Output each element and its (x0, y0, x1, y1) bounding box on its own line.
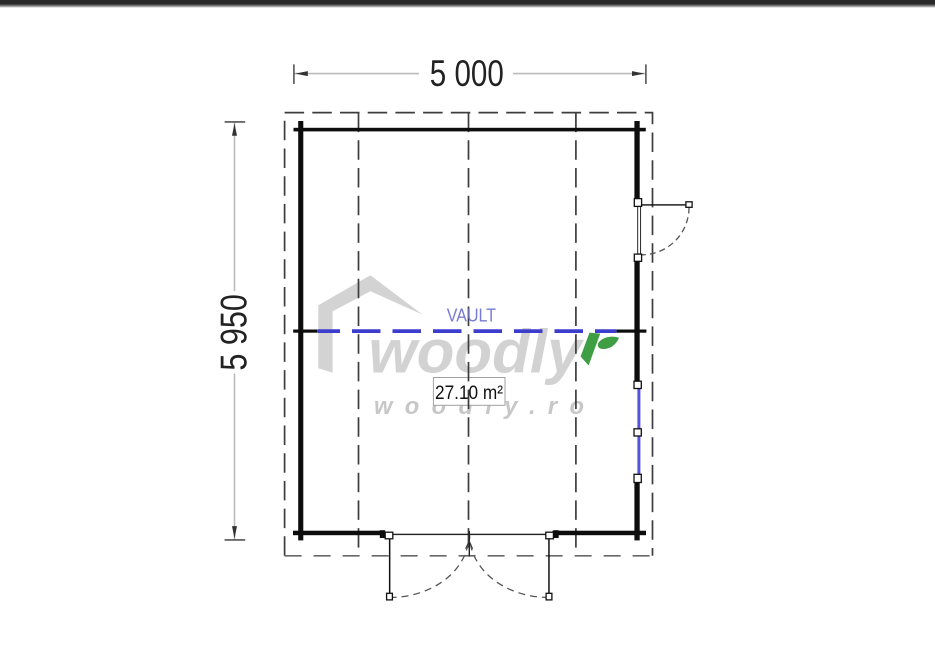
svg-text:5 000: 5 000 (430, 53, 504, 94)
svg-text:VAULT: VAULT (447, 305, 496, 326)
svg-text:5 950: 5 950 (214, 294, 255, 371)
svg-text:27.10 m²: 27.10 m² (435, 382, 503, 404)
svg-text:woodly: woodly (369, 317, 585, 386)
